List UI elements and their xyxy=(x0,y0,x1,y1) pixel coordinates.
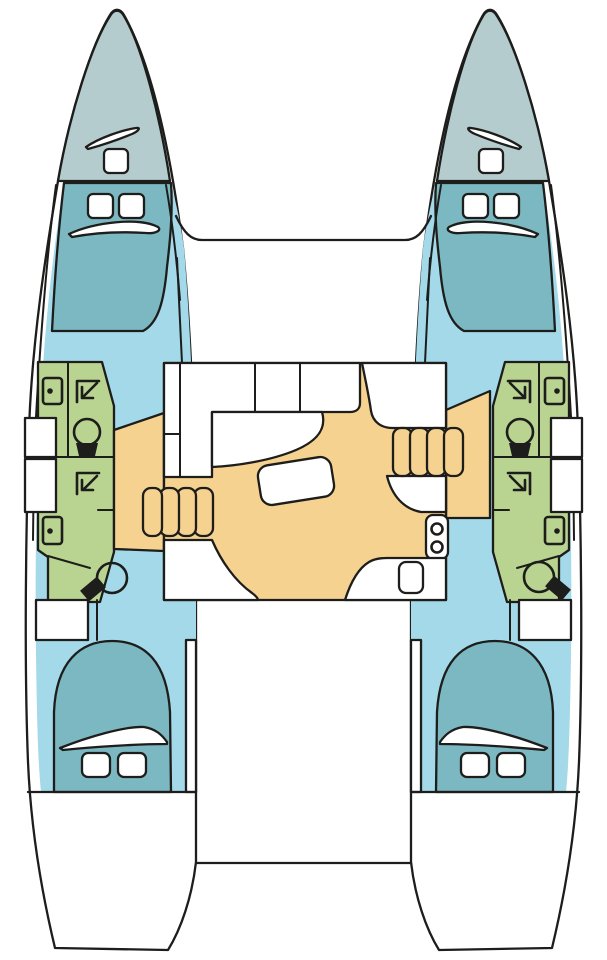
cabin-hatch xyxy=(88,194,113,218)
forward-crossbeam-line xyxy=(176,216,431,240)
chart-seat xyxy=(362,363,446,428)
washbasin-drain-icon xyxy=(47,528,53,534)
hull-side-locker xyxy=(551,459,582,512)
stair-step xyxy=(143,488,162,536)
toilet-tank-icon xyxy=(76,443,98,456)
stove-icon xyxy=(399,562,423,593)
cabin-hatch xyxy=(463,194,488,218)
washbasin-drain-icon xyxy=(554,528,560,534)
cabin-hatch xyxy=(461,753,489,777)
stairs-port xyxy=(143,488,213,536)
hull-side-locker xyxy=(551,418,582,457)
stair-step xyxy=(444,428,463,476)
catamaran-floor-plan xyxy=(0,0,607,960)
floor-plan-canvas xyxy=(0,0,607,960)
stairs-starboard xyxy=(393,428,463,476)
aft-berth xyxy=(54,641,171,792)
sink-basin-icon xyxy=(432,542,443,553)
sink-basin-icon xyxy=(432,524,443,535)
foredeck-hatch xyxy=(479,149,503,173)
aft-berth xyxy=(436,641,553,792)
washbasin-drain-icon xyxy=(47,388,53,394)
cabin-hatch xyxy=(119,194,144,218)
cabin-hatch xyxy=(497,753,525,777)
cabin-hatch xyxy=(118,753,146,777)
toilet-tank-icon xyxy=(509,443,531,456)
hull-side-locker xyxy=(25,459,56,512)
aft-side-shelf xyxy=(186,640,196,792)
aft-locker xyxy=(36,600,88,640)
cabin-hatch xyxy=(82,753,110,777)
hull-side-locker xyxy=(25,418,56,457)
washbasin-drain-icon xyxy=(554,388,560,394)
cabin-hatch xyxy=(494,194,519,218)
aft-locker xyxy=(519,600,571,640)
foredeck-hatch xyxy=(104,149,128,173)
aft-side-shelf xyxy=(411,640,421,792)
